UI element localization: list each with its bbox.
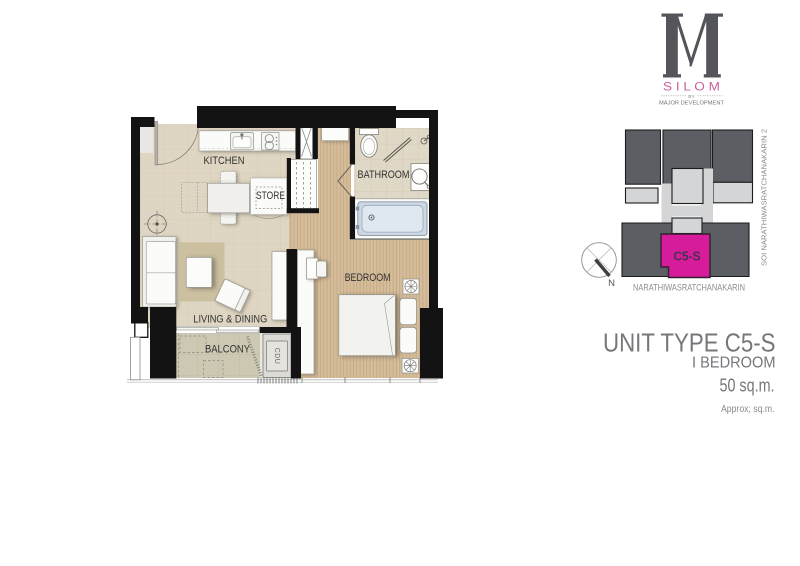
svg-text:BEDROOM: BEDROOM (345, 272, 391, 284)
svg-text:UNIT TYPE C5-S: UNIT TYPE C5-S (603, 328, 776, 358)
svg-text:Approx; sq.m.: Approx; sq.m. (721, 403, 775, 415)
svg-text:SOI NARATHIWASRATCHANAKARIN 2: SOI NARATHIWASRATCHANAKARIN 2 (760, 129, 769, 266)
svg-text:LIVING & DINING: LIVING & DINING (193, 314, 267, 326)
svg-text:STORE: STORE (256, 190, 285, 202)
svg-text:KITCHEN: KITCHEN (204, 155, 245, 167)
svg-text:BY: BY (688, 94, 695, 100)
svg-text:50 sq.m.: 50 sq.m. (720, 375, 775, 396)
svg-text:S I L O M: S I L O M (663, 82, 720, 94)
svg-text:C5-S: C5-S (674, 249, 701, 264)
svg-text:BALCONY: BALCONY (205, 344, 251, 356)
svg-text:N: N (608, 278, 615, 289)
svg-text:I BEDROOM: I BEDROOM (692, 355, 776, 372)
svg-text:MAJOR DEVELOPMENT: MAJOR DEVELOPMENT (659, 101, 724, 107)
svg-text:BATHROOM: BATHROOM (358, 169, 410, 181)
svg-text:NARATHIWASRATCHANAKARIN: NARATHIWASRATCHANAKARIN (633, 283, 745, 293)
svg-text:CDU: CDU (273, 348, 280, 365)
